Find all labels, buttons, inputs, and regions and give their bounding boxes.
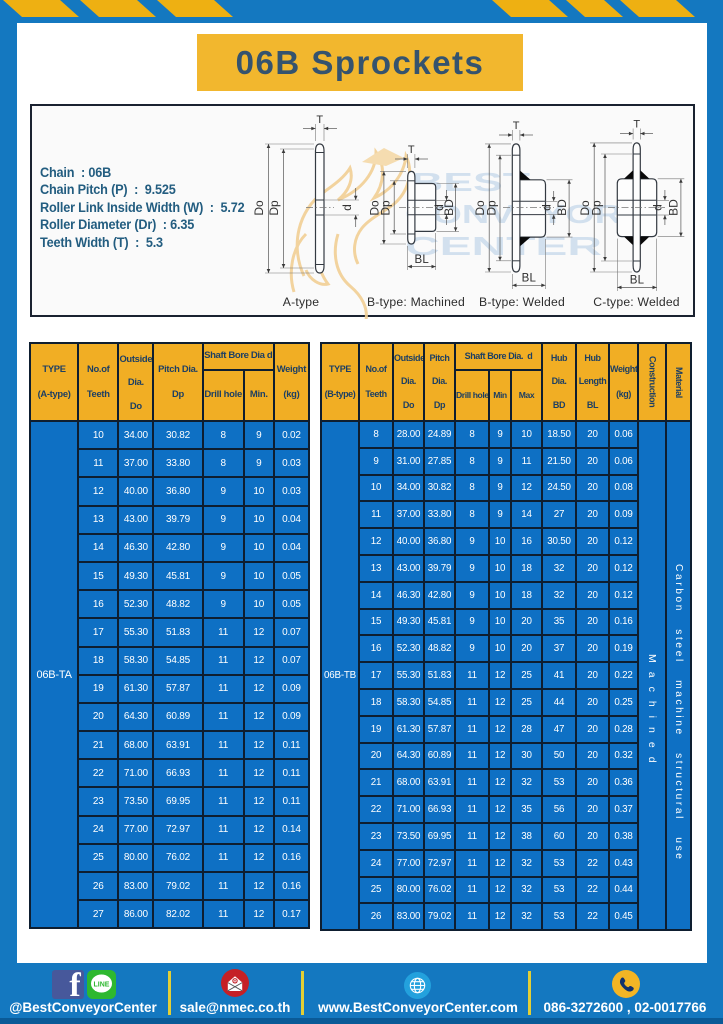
svg-text:Dp: Dp: [485, 200, 499, 216]
svg-text:LINE: LINE: [94, 982, 110, 989]
svg-text:BD: BD: [442, 199, 456, 216]
svg-text:BL: BL: [630, 275, 645, 287]
svg-text:d: d: [340, 204, 354, 211]
svg-text:B-type: Welded: B-type: Welded: [479, 295, 565, 309]
svg-text:C-type: Welded: C-type: Welded: [593, 295, 680, 309]
svg-text:Dp: Dp: [267, 200, 281, 216]
svg-text:T: T: [316, 114, 323, 126]
svg-text:Dp: Dp: [379, 200, 393, 216]
svg-text:T: T: [408, 144, 415, 156]
svg-text:T: T: [633, 119, 640, 131]
svg-text:BD: BD: [667, 199, 681, 216]
svg-text:d: d: [651, 204, 665, 211]
svg-text:A-type: A-type: [283, 295, 319, 309]
svg-text:BD: BD: [555, 199, 569, 216]
svg-text:B-type: Machined: B-type: Machined: [367, 295, 465, 309]
svg-text:T: T: [513, 120, 520, 132]
svg-text:Do: Do: [252, 200, 266, 216]
svg-text:Dp: Dp: [590, 200, 604, 216]
svg-text:BL: BL: [414, 254, 429, 266]
svg-text:CENTER: CENTER: [405, 231, 602, 261]
svg-text:BL: BL: [522, 273, 537, 285]
svg-text:d: d: [540, 204, 554, 211]
